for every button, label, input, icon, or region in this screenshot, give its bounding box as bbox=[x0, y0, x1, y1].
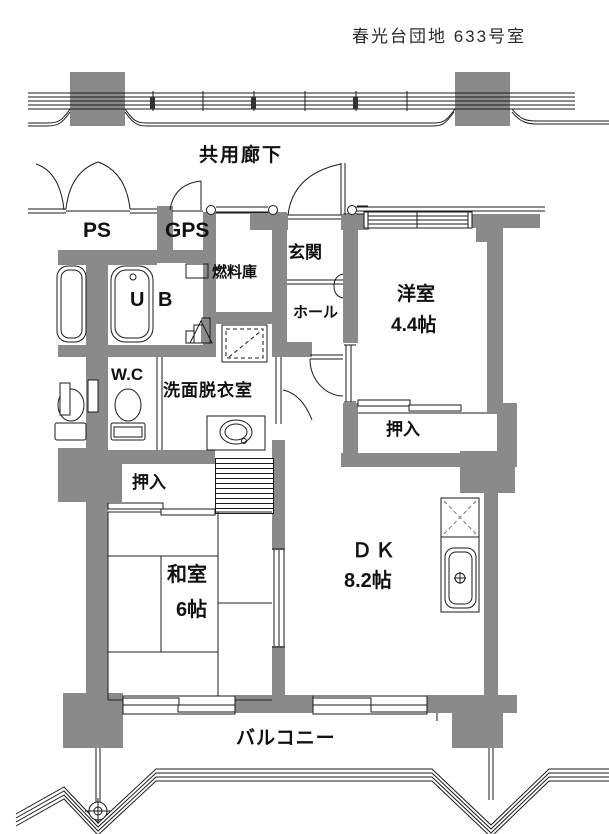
genkan-step-line bbox=[287, 274, 343, 298]
label-hall: ホール bbox=[293, 305, 338, 321]
label-western-room: 洋室 bbox=[397, 285, 435, 305]
gps-door-arc bbox=[170, 181, 201, 210]
westroom-door bbox=[343, 343, 358, 403]
washbasin-icon bbox=[207, 416, 265, 450]
washroom-door bbox=[276, 357, 312, 424]
drain-icon bbox=[85, 798, 111, 824]
label-ps: PS bbox=[83, 220, 111, 242]
ps-door-arcs bbox=[36, 162, 130, 210]
dk-window bbox=[313, 696, 437, 721]
washing-machine-icon bbox=[222, 325, 267, 362]
washitsu-window bbox=[123, 696, 235, 714]
toilet-icon bbox=[88, 380, 145, 440]
label-japanese-room-size: 6帖 bbox=[176, 600, 207, 621]
label-closet-japanese: 押入 bbox=[132, 474, 166, 492]
label-gps: GPS bbox=[165, 220, 209, 242]
floor-plan: 春光台団地 633号室 共用廊下 PS GPS 燃料庫 玄関 ホール U B W… bbox=[0, 0, 609, 834]
label-western-room-size: 4.4帖 bbox=[391, 316, 436, 336]
wc-washroom-wall bbox=[157, 357, 162, 450]
bath-door-triangle bbox=[190, 321, 212, 343]
label-closet-west: 押入 bbox=[386, 421, 420, 439]
neighbor-bathtub-icon bbox=[57, 266, 86, 342]
label-unit-bath: U B bbox=[130, 290, 176, 311]
stove-icon bbox=[441, 498, 479, 537]
label-toilet: W.C bbox=[111, 366, 143, 384]
label-washroom: 洗面脱衣室 bbox=[163, 382, 253, 400]
washitsu-closet-slider bbox=[108, 503, 215, 515]
balcony-railing bbox=[16, 748, 609, 834]
westroom-window bbox=[364, 212, 472, 228]
label-japanese-room: 和室 bbox=[167, 565, 207, 586]
label-dining-kitchen: ＤＫ bbox=[352, 541, 398, 562]
entrance-door bbox=[207, 163, 369, 219]
label-balcony: バルコニー bbox=[236, 729, 336, 749]
neighbor-toilet-icon bbox=[55, 383, 86, 440]
door-handle bbox=[334, 274, 343, 298]
corridor-railing bbox=[28, 91, 609, 126]
page-title: 春光台団地 633号室 bbox=[352, 22, 526, 47]
label-corridor: 共用廊下 bbox=[199, 146, 283, 166]
sink-icon bbox=[441, 537, 479, 612]
label-entrance: 玄関 bbox=[288, 244, 322, 262]
washitsu-dk-fusuma bbox=[272, 549, 285, 647]
westroom-closet-slider bbox=[358, 400, 487, 413]
label-fuel-storage: 燃料庫 bbox=[212, 265, 257, 281]
label-dining-kitchen-size: 8.2帖 bbox=[344, 571, 392, 592]
hall-dk-door bbox=[310, 355, 343, 396]
